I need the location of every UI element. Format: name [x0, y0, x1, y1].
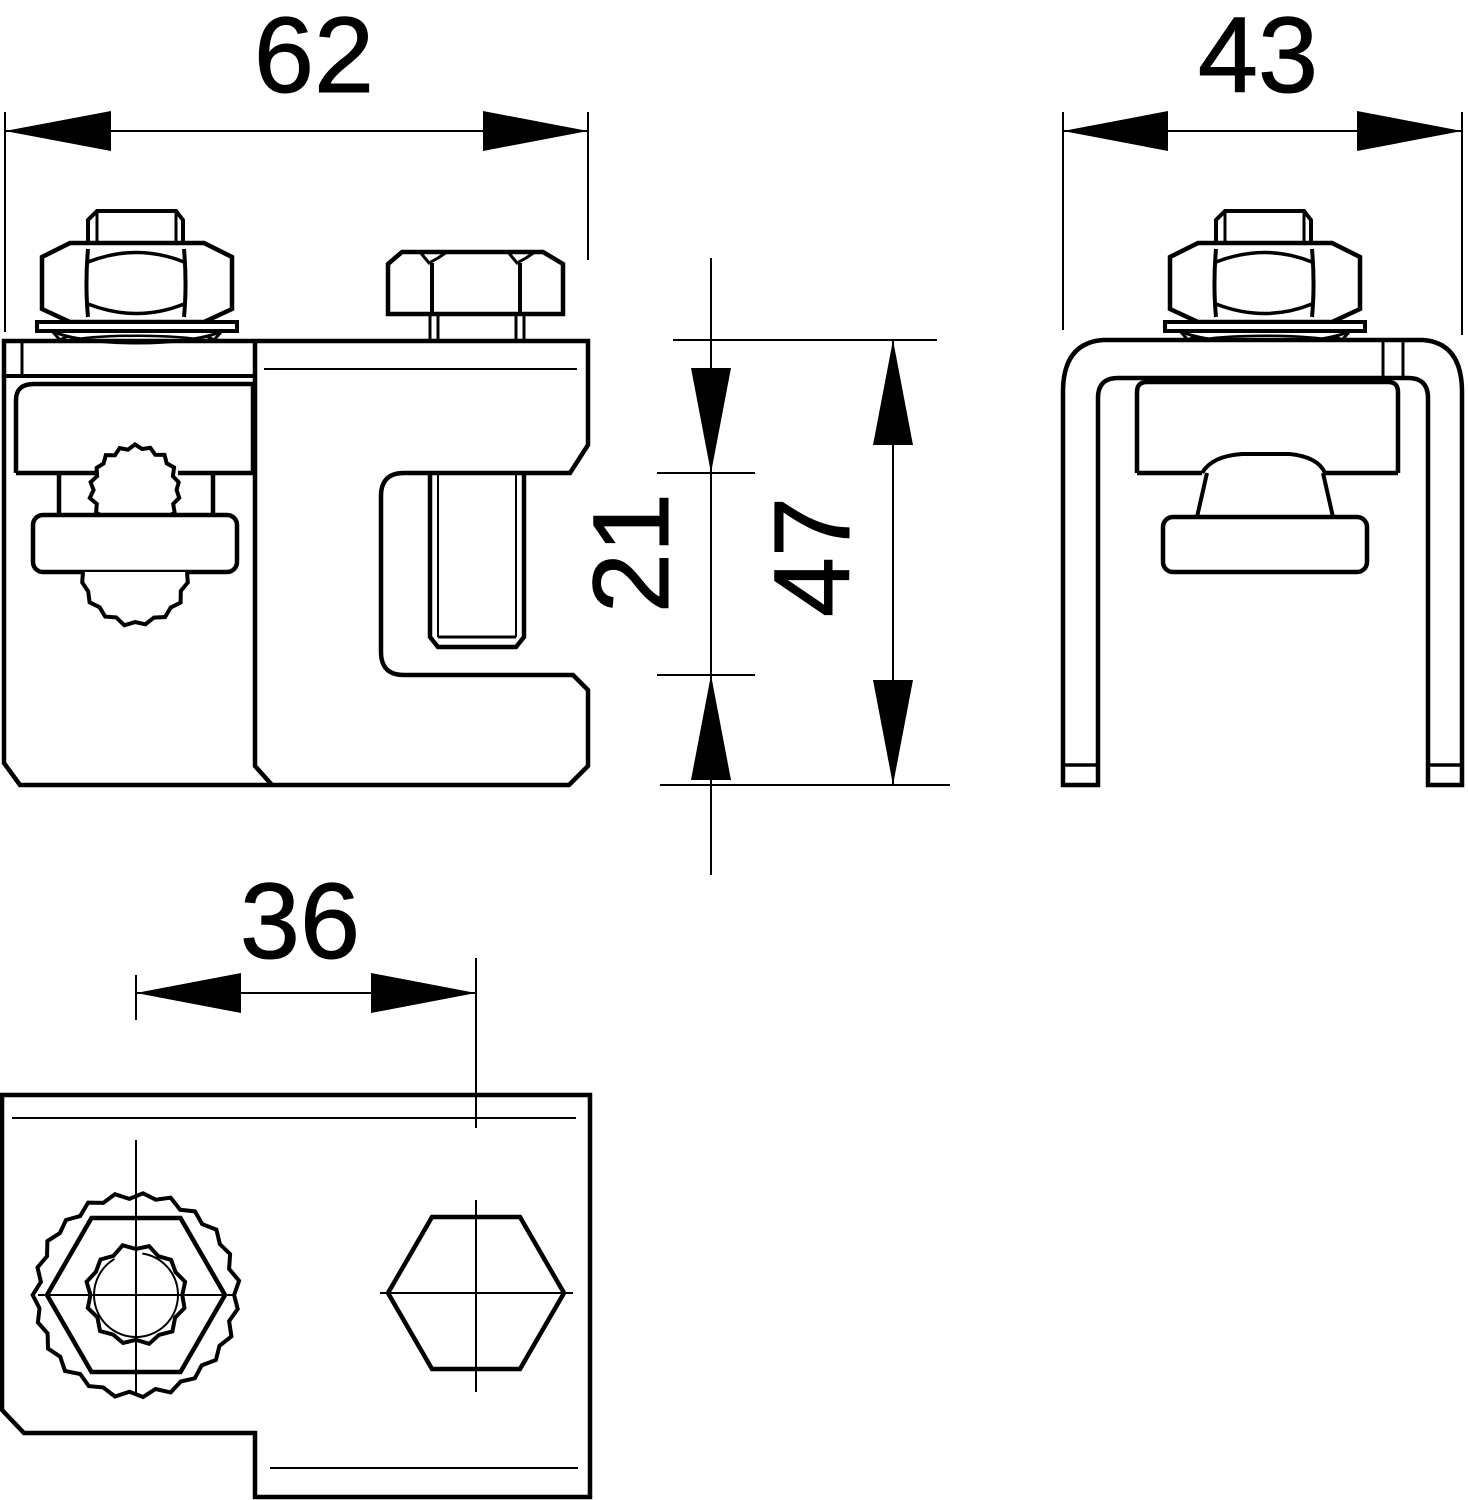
dim62-arrow-left: [5, 111, 111, 151]
technical-drawing: 62 43 21 47: [0, 0, 1468, 1500]
bolt-square-end: [88, 211, 183, 243]
side-view: [1063, 340, 1462, 785]
front-rod-above: [430, 314, 524, 341]
front-hex-head: [388, 252, 563, 314]
side-upper-jaw: [1137, 382, 1398, 473]
dim43-arrow-right: [1357, 111, 1462, 151]
hex-nut-facet-left: [87, 249, 89, 317]
dim-opening-height: 21: [570, 258, 731, 875]
drawing-canvas: 62 43 21 47: [0, 0, 1468, 1500]
hex-nut-facet-right: [184, 249, 186, 317]
side-lower-bar: [1163, 517, 1367, 572]
front-rod-outline: [430, 473, 524, 647]
side-neck-left: [1197, 473, 1207, 517]
dim-total-height: 47: [751, 340, 913, 785]
dim47-value: 47: [751, 497, 872, 617]
dim62-value: 62: [254, 0, 374, 115]
top-view: [2, 1095, 590, 1497]
dim-bolt-spacing: 36: [136, 860, 476, 1128]
bolt-nut-washer-assembly: [37, 211, 237, 343]
side-conductor-hump: [1202, 454, 1325, 473]
dim62-arrow-right: [483, 111, 588, 151]
side-neck-right: [1323, 473, 1333, 517]
dim21-arrow-top: [691, 368, 731, 473]
dim21-arrow-bottom: [691, 675, 731, 780]
front-lower-bar: [33, 515, 237, 572]
dim36-arrow-left: [136, 973, 241, 1013]
hex-nut: [42, 243, 232, 322]
dim36-value: 36: [240, 860, 360, 981]
dim36-arrow-right: [371, 973, 476, 1013]
dim43-arrow-left: [1063, 111, 1168, 151]
dim21-value: 21: [570, 493, 691, 613]
dim47-arrow-bottom: [873, 680, 913, 785]
side-view-bolt-assembly: [1165, 211, 1365, 343]
washer-plate: [37, 322, 237, 331]
dim43-value: 43: [1198, 0, 1318, 115]
dim47-arrow-top: [873, 340, 913, 445]
